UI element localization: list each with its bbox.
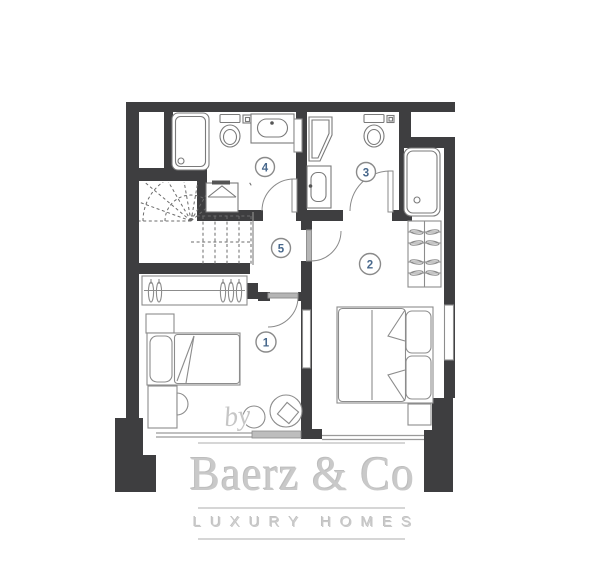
shower-icon [309, 117, 332, 161]
room-number-3: 3 [363, 168, 369, 180]
sink-icon [251, 114, 294, 143]
room-number-badge-2: 2 [360, 254, 381, 275]
radiator-icon [445, 305, 454, 360]
room-number-badge-5: 5 [272, 239, 291, 258]
double-bed-icon [337, 307, 433, 403]
nightstand-icon [408, 404, 431, 425]
single-bed-icon [147, 333, 240, 385]
closet-hangers-icon [142, 276, 247, 305]
window-sill [252, 431, 301, 438]
room-number-badge-1: 1 [256, 332, 276, 352]
door-bedroom-2 [307, 230, 342, 261]
radiator-icon [303, 310, 311, 368]
room-number-badge-4: 4 [256, 158, 275, 177]
laundry-cabinet-icon [206, 181, 238, 213]
window-bedroom-2 [322, 436, 424, 440]
watermark-by-script: by [222, 400, 252, 435]
room-number-4: 4 [262, 163, 269, 175]
desk-icon [148, 386, 188, 428]
bathtub-icon [404, 148, 440, 216]
armchair-icon [270, 395, 302, 427]
radiator-icon [294, 119, 302, 152]
toilet-icon [220, 115, 251, 148]
door-bathroom-4 [262, 179, 297, 212]
room-number-badge-3: 3 [357, 163, 376, 182]
watermark-divider-middle [198, 507, 405, 509]
room-number-2: 2 [367, 260, 373, 272]
watermark-divider-top [198, 442, 405, 444]
room-number-1: 1 [263, 338, 270, 350]
watermark-brand-name: Baerz & Co [150, 446, 455, 502]
sink-icon [307, 166, 331, 208]
room-number-5: 5 [278, 244, 285, 256]
wardrobe-icon [408, 221, 441, 287]
floorplan-image: 1 2 3 4 5 by Baerz & Co LUXURY HOMES [0, 0, 600, 568]
watermark-tagline: LUXURY HOMES [150, 514, 455, 531]
desk-chair-icon [177, 393, 188, 415]
nightstand-icon [146, 314, 174, 333]
door-bedroom-1 [268, 293, 298, 327]
toilet-icon [364, 115, 394, 148]
bathtub-icon [172, 113, 209, 170]
watermark-divider-bottom [198, 538, 405, 540]
